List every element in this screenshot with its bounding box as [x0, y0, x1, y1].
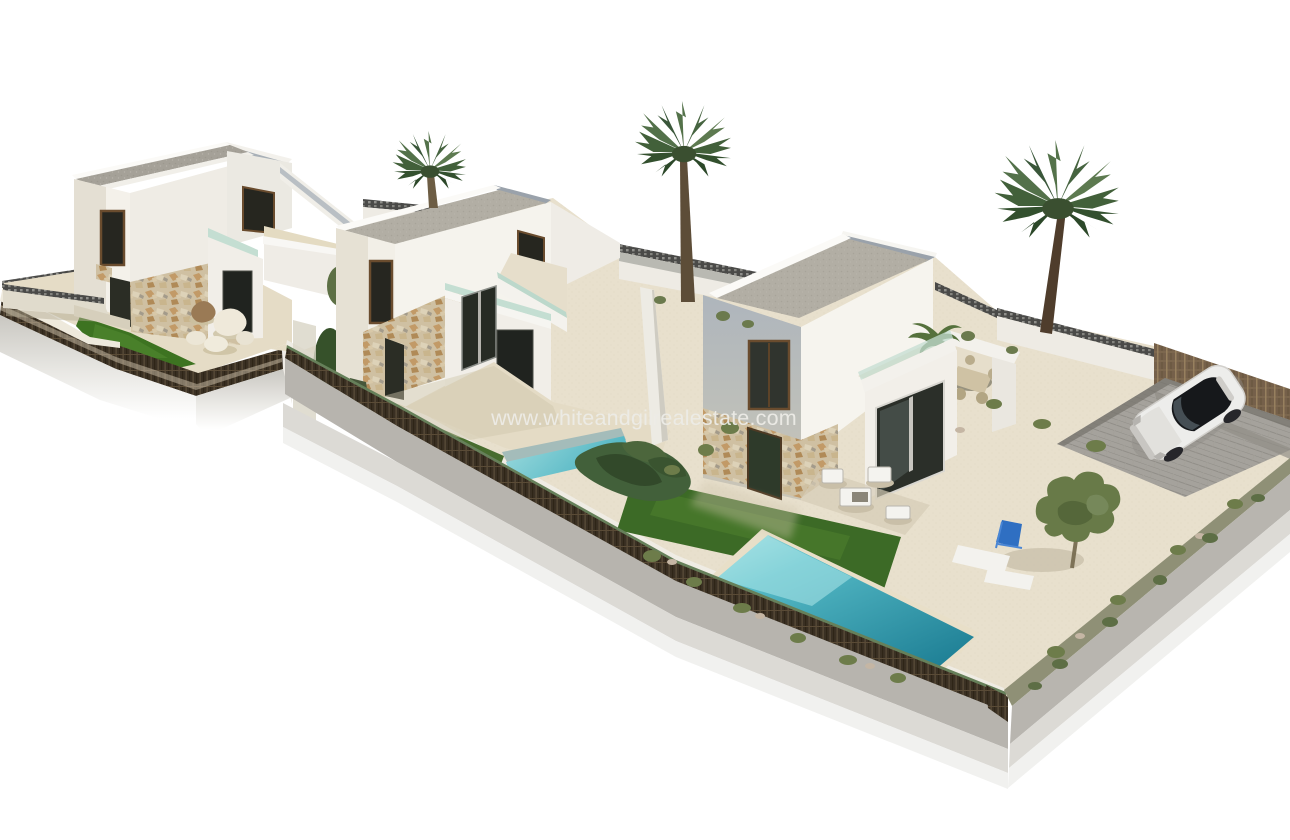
svg-text:www.whiteandgilrealestate.com: www.whiteandgilrealestate.com: [490, 406, 797, 430]
